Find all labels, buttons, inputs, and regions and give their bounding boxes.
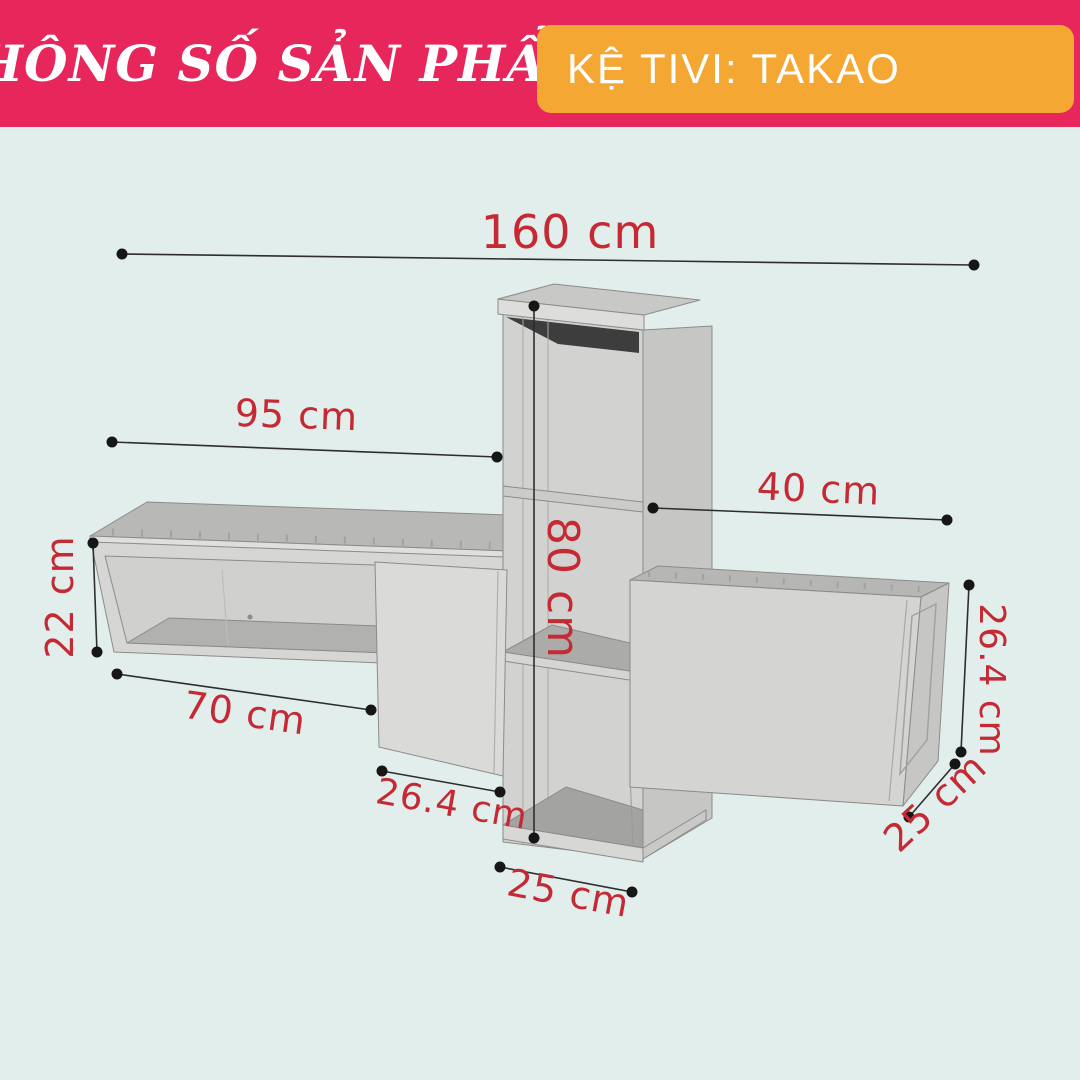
dimension-label-total-width: 160 cm	[481, 205, 660, 259]
door-panel	[375, 562, 507, 776]
dimension-left-shelf-width: 95 cm	[107, 391, 503, 463]
dimension-total-width: 160 cm	[117, 205, 980, 271]
right-cabinet-front	[630, 580, 921, 806]
dimension-left-shelf-height: 22 cm	[38, 535, 103, 658]
left-shelf-cam-hole	[248, 615, 253, 620]
dimension-label-left-shelf-width: 95 cm	[234, 391, 359, 439]
dimension-left-shelf-bottom-width: 70 cm	[112, 669, 377, 744]
dimension-column-base-width: 25 cm	[495, 860, 638, 926]
dimension-label-right-cabinet-height: 26.4 cm	[971, 603, 1012, 756]
dimension-right-cabinet-height: 26.4 cm	[956, 580, 1013, 758]
dimension-label-left-shelf-bottom-width: 70 cm	[181, 683, 309, 744]
diagram-canvas: 160 cm 95 cm 40 cm 22 cm 80 cm	[0, 127, 1080, 1080]
dimension-label-column-base-width: 25 cm	[504, 860, 633, 926]
dimension-label-upper-right-width: 40 cm	[756, 464, 881, 513]
dimension-label-column-height: 80 cm	[537, 517, 588, 659]
right-cabinet	[630, 566, 949, 806]
header-banner: THÔNG SỐ SẢN PHẨM KỆ TIVI: TAKAO	[0, 0, 1080, 127]
product-spec-page: THÔNG SỐ SẢN PHẨM KỆ TIVI: TAKAO	[0, 0, 1080, 1080]
dimension-label-left-shelf-height: 22 cm	[38, 535, 82, 658]
page-title: THÔNG SỐ SẢN PHẨM	[0, 0, 540, 127]
product-name-badge: KỆ TIVI: TAKAO	[537, 25, 1074, 113]
door-panel-face	[375, 562, 507, 776]
furniture-diagram: 160 cm 95 cm 40 cm 22 cm 80 cm	[0, 127, 1080, 1080]
product-name-label: KỆ TIVI: TAKAO	[567, 45, 901, 93]
